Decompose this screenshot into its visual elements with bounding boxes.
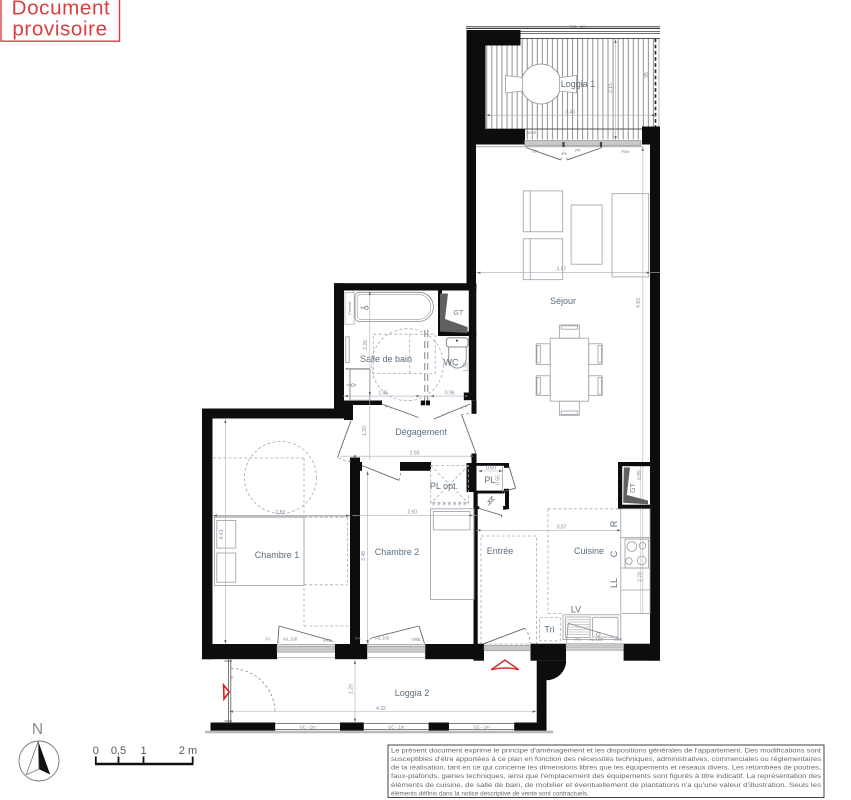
svg-text:0.60: 0.60 — [486, 466, 496, 472]
svg-text:PL: PL — [484, 475, 495, 485]
svg-text:4.32: 4.32 — [376, 706, 386, 712]
svg-text:Loggia 2: Loggia 2 — [395, 688, 430, 698]
svg-text:3.57: 3.57 — [556, 267, 566, 273]
svg-text:WC: WC — [444, 358, 459, 368]
svg-text:Le présent document exprime le: Le présent document exprime le principe … — [391, 747, 821, 754]
svg-text:0.55: 0.55 — [496, 475, 502, 485]
svg-text:2.15: 2.15 — [608, 83, 614, 93]
svg-text:GC - 1m: GC - 1m — [570, 24, 587, 29]
svg-text:Loggia 1: Loggia 1 — [561, 79, 596, 89]
svg-text:LL: LL — [609, 578, 619, 588]
svg-text:2.26: 2.26 — [363, 340, 369, 350]
svg-text:Cuisine: Cuisine — [574, 546, 604, 556]
svg-text:GT: GT — [630, 482, 637, 492]
svg-text:0,5: 0,5 — [111, 745, 126, 757]
svg-text:AL 100: AL 100 — [589, 637, 603, 642]
svg-text:provisoire: provisoire — [12, 17, 107, 40]
svg-text:95: 95 — [644, 72, 650, 78]
svg-text:Séjour: Séjour — [550, 296, 576, 306]
svg-text:2 m: 2 m — [179, 745, 197, 757]
svg-text:1.45: 1.45 — [378, 391, 388, 397]
svg-text:3.45: 3.45 — [565, 110, 575, 116]
svg-text:0.85: 0.85 — [637, 470, 643, 480]
svg-text:Tri: Tri — [544, 625, 554, 635]
svg-text:N: N — [32, 721, 43, 738]
svg-text:0.96: 0.96 — [445, 391, 455, 397]
svg-text:Entrée: Entrée — [487, 546, 514, 556]
svg-text:3.48: 3.48 — [361, 551, 367, 561]
svg-text:GT: GT — [454, 310, 464, 317]
svg-text:2.50: 2.50 — [410, 451, 420, 457]
svg-text:FA: FA — [575, 637, 580, 642]
svg-text:4.93: 4.93 — [636, 298, 642, 308]
svg-text:1.20: 1.20 — [349, 684, 355, 694]
svg-text:Seuil: Seuil — [526, 130, 536, 135]
svg-text:susceptibles d'être apportées: susceptibles d'être apportées à ce plan … — [391, 756, 821, 763]
svg-text:0: 0 — [93, 745, 99, 757]
svg-text:FA: FA — [265, 637, 270, 642]
svg-text:4.43: 4.43 — [219, 529, 225, 539]
svg-text:VRE: VRE — [323, 638, 332, 643]
svg-text:VRE: VRE — [412, 637, 421, 642]
svg-text:VRE: VRE — [614, 637, 623, 642]
svg-text:1.20: 1.20 — [362, 426, 368, 436]
svg-text:GC - 1m: GC - 1m — [299, 725, 316, 730]
svg-text:faux-plafonds, gaines techniqu: faux-plafonds, gaines techniques, ainsi … — [391, 773, 821, 780]
svg-text:Dégagement: Dégagement — [395, 427, 447, 437]
svg-text:2.50: 2.50 — [407, 510, 417, 516]
svg-text:1: 1 — [140, 745, 146, 757]
svg-text:PL opt.: PL opt. — [430, 481, 458, 491]
svg-text:AIL 100: AIL 100 — [283, 637, 298, 642]
svg-text:Salle de bain: Salle de bain — [360, 354, 412, 364]
svg-text:GC - 1m: GC - 1m — [473, 725, 490, 730]
svg-text:AIL 100: AIL 100 — [375, 636, 390, 641]
svg-text:E: E — [231, 675, 234, 680]
svg-text:R: R — [609, 520, 619, 527]
svg-text:FA: FA — [355, 636, 360, 641]
svg-text:LV: LV — [571, 605, 581, 615]
svg-text:2.83: 2.83 — [275, 510, 285, 516]
svg-text:Fixe: Fixe — [621, 149, 630, 154]
svg-text:VR: VR — [532, 149, 538, 154]
svg-text:PF: PF — [575, 148, 581, 153]
svg-text:éléments de cuisine, de salle: éléments de cuisine, de salle de bain, d… — [391, 782, 821, 789]
svg-text:1.35: 1.35 — [464, 362, 470, 372]
svg-text:de la réalisation, tant en ce: de la réalisation, tant en ce qui concer… — [391, 765, 821, 772]
svg-text:Faïence: Faïence — [348, 302, 352, 315]
svg-text:éléments définis dans la notic: éléments définis dans la notice descript… — [391, 790, 589, 797]
svg-text:GC - 1m: GC - 1m — [388, 725, 405, 730]
svg-text:2.78: 2.78 — [638, 572, 644, 582]
svg-text:Chambre 1: Chambre 1 — [255, 550, 300, 560]
svg-text:C: C — [609, 550, 619, 557]
svg-text:A: A — [562, 151, 565, 156]
svg-text:Chambre 2: Chambre 2 — [375, 547, 420, 557]
svg-text:3.57: 3.57 — [557, 525, 567, 531]
